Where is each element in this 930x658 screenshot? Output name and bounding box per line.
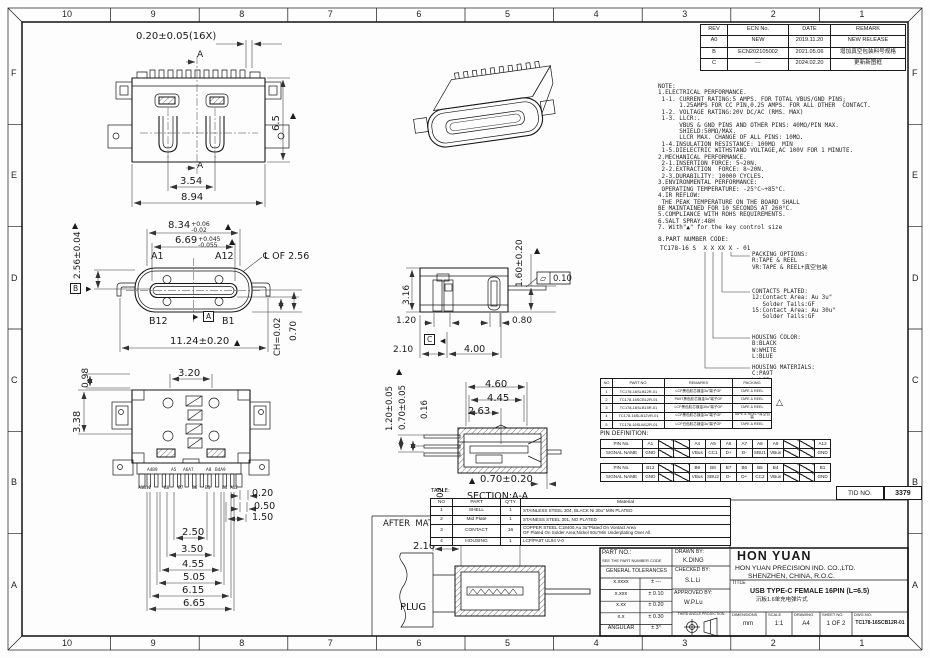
footer-value: 1:1 [766, 621, 792, 628]
dim-label: 0.20 [252, 489, 273, 499]
dim-label: ▱ [540, 275, 546, 283]
dim-label: B1 [222, 317, 235, 327]
cell: REMARKS [665, 379, 733, 388]
part-number-code: TC178-16 S X X XX X - 01 [660, 246, 750, 252]
cell: 4 [601, 412, 613, 421]
cell: VBus [689, 473, 705, 482]
isometric-view [408, 60, 560, 151]
checked-by: S.L.Li [685, 578, 700, 584]
checked-by-label: CHECKED BY: [675, 568, 710, 573]
cell: NO [601, 379, 613, 388]
dim-label: PLUG [400, 603, 426, 613]
footer-header: DWG.NO. [854, 613, 872, 617]
dim-label: ▲ [396, 368, 402, 376]
zone-number: 4 [594, 639, 599, 648]
cell [674, 464, 690, 473]
cell: SBU2 [705, 473, 721, 482]
dim-label: ▲ [290, 112, 296, 120]
dim-label: A8 [206, 468, 211, 472]
cell: 2 [431, 516, 453, 525]
cell: SIGNAL NAME [601, 449, 643, 458]
zone-letter: D [912, 274, 919, 283]
cell: B4 [768, 464, 784, 473]
cell: D- [736, 449, 752, 458]
cell: TAPE & REEL [733, 421, 772, 429]
cell: 增加真空包装料号规格 [831, 47, 906, 59]
cell: TAPE & REEL [733, 396, 772, 404]
dim-label: A12 [215, 252, 234, 262]
cell: 3 [431, 525, 453, 538]
approved-by: W.P.Lu [684, 600, 703, 606]
zone-letter: F [912, 69, 918, 78]
cell [674, 449, 690, 458]
pn-branch-packing: PACKING OPTIONS: R:TAPE & REEL VR:TAPE &… [752, 252, 828, 271]
company-name: HON YUAN [737, 550, 811, 563]
dim-label: A [197, 51, 203, 60]
footer-value: TC178-16SCB12R-01 [852, 621, 908, 626]
dim-label: 1.60±0.20 [516, 239, 525, 287]
zone-letter: A [912, 581, 918, 590]
dim-label: A5 [171, 468, 176, 472]
tid-value: 3379 [884, 486, 922, 500]
zone-letter: A [11, 581, 17, 590]
zone-number: 7 [328, 639, 333, 648]
cell: STAINLESS STEEL 304, BLACK Ni 30u" MIN P… [521, 507, 731, 516]
cell: SIGNAL NAME [601, 473, 643, 482]
dim-label: A6A7 [183, 468, 194, 472]
cell: LCP黑色胶芯镀金3u"端子GF [665, 412, 733, 421]
dim-label: 3.16 [403, 285, 412, 305]
dim-label: ◀ [440, 338, 445, 345]
dim-label: 2.50 [182, 528, 204, 538]
dim-label: 2.56±0.04 [74, 231, 83, 279]
dim-label: B4A9 [215, 468, 226, 472]
cell [658, 449, 674, 458]
cell: Q'TY [501, 499, 521, 507]
cell: B6 [736, 464, 752, 473]
dim-label: 4.55 [182, 560, 204, 570]
tolerance-header: GENERAL TOLERANCES [601, 569, 672, 574]
cell: B [701, 47, 728, 59]
cell: A5 [705, 440, 721, 449]
tolerance-value: ± 0.20 [642, 603, 670, 609]
dim-label: 3.20 [178, 369, 200, 379]
cell: Mid Plate [453, 516, 501, 525]
cell: TC178-16SLB12VR-01 [613, 412, 665, 421]
frame-lines [730, 498, 908, 548]
cell: 2 [601, 396, 613, 404]
cell [799, 449, 815, 458]
datum-c: C [424, 334, 435, 345]
cell: VBus [768, 473, 784, 482]
engineering-drawing-sheet: .s{fill:none;stroke:#161616;stroke-width… [0, 0, 930, 658]
dim-label: A4B9 [147, 468, 158, 472]
dim-label: 1.50 [252, 513, 273, 523]
drawn-by: K.DING [683, 558, 704, 564]
cell: A0 [701, 36, 728, 48]
zone-number: 2 [771, 10, 776, 19]
cell: 1 [501, 507, 521, 516]
zone-letter: E [11, 171, 17, 180]
footer-header: SHEET NO. [822, 613, 844, 617]
cell: GND [815, 473, 831, 482]
tolerance-label: x.xxxx [605, 580, 637, 586]
cell: SHELL [453, 507, 501, 516]
cell: D+ [721, 449, 737, 458]
dim-label: A1B12 [138, 486, 151, 490]
cell: B9 [689, 464, 705, 473]
cell: B1 [815, 464, 831, 473]
dim-label: △ [776, 399, 783, 408]
zone-number: 3 [682, 10, 687, 19]
revision-table: REVECN No.DATEREMARKA0NEW2019.11.20NEW R… [700, 24, 906, 71]
cell [783, 449, 799, 458]
drawn-by-label: DRAWN BY: [675, 550, 704, 555]
zone-number: 7 [328, 10, 333, 19]
dim-label: 6.15 [182, 586, 204, 596]
cell: 3 [601, 404, 613, 412]
dim-label: ℄ OF 2.56 [263, 252, 309, 262]
zone-number: 1 [859, 10, 864, 19]
cell [799, 464, 815, 473]
dim-label: B12 [149, 317, 168, 327]
cell: LCP白色胶芯镀金3u"端子GF [665, 421, 733, 429]
cell: A7 [736, 440, 752, 449]
dim-label: 6.5 [272, 115, 282, 131]
tolerance-value: ± 3° [642, 626, 670, 632]
cell: ECN No. [728, 25, 789, 36]
cell: LCP黑色胶芯镀金30u"端子GF [665, 404, 733, 412]
cell: LCP/PA9T UL94 V-0 [521, 538, 731, 546]
pn-code-tree-lines [705, 252, 750, 368]
dim-label: A [197, 162, 203, 171]
section-view [398, 382, 561, 489]
dim-label: 0.10 [553, 275, 572, 284]
cell: TC178-16SLW12R-01 [613, 421, 665, 429]
pin-table-b: PIN No.B12B9B8B7B6B5B4B1SIGNAL NAMEGNDVB… [600, 463, 831, 482]
notes-block: NOTE: 1.ELECTRICAL PERFORMANCE. 1-1. CUR… [658, 84, 871, 232]
dim-label: A1 [151, 252, 164, 262]
zone-number: 8 [239, 10, 244, 19]
tid-label: TID NO. [836, 486, 884, 500]
zone-number: 2 [771, 639, 776, 648]
cell: A1 [643, 440, 659, 449]
cell: PACKING [733, 379, 772, 388]
cell: PART [453, 499, 501, 507]
cell: PIN No. [601, 440, 643, 449]
datum-a: A [203, 311, 214, 322]
zone-letter: C [912, 376, 919, 385]
footer-header: SCALE [768, 613, 781, 617]
dim-label: 1.20 [396, 317, 416, 326]
dim-label: 2.63 [468, 407, 490, 417]
company-line1: HON YUAN PRECISION IND. CO.,LTD. [735, 565, 856, 572]
cell: NEW [728, 36, 789, 48]
dim-label: ▲ [469, 477, 475, 485]
dim-label: ▲ [225, 223, 231, 231]
title-label: TITLE [732, 581, 746, 586]
dim-label: 8.34+0.06-0.02 [168, 221, 210, 235]
cell: D- [721, 473, 737, 482]
cell: D+ [736, 473, 752, 482]
dim-label: 3.54 [180, 177, 202, 187]
cell: B8 [705, 464, 721, 473]
company-line2: SHENZHEN, CHINA, R.O.C. [748, 573, 835, 580]
cell: LCP黑色胶芯镀金3u"端子GF [665, 388, 733, 396]
zone-number: 8 [239, 639, 244, 648]
cell: 2021.05.06 [789, 47, 831, 59]
zone-number: 9 [151, 639, 156, 648]
pin-table-a: PIN No.A1A4A5A6A7A8A9A12SIGNAL NAMEGNDVB… [600, 439, 831, 458]
footer-header: DIMENSIONS [732, 613, 757, 617]
zone-number: 3 [682, 639, 687, 648]
cell: COPPER STEEL C18400,Au 3u"Plated On Vont… [521, 525, 731, 538]
footer-value: A4 [792, 621, 820, 628]
footer-value: 1 OF 2 [820, 621, 852, 628]
dim-label: 11.24±0.20 [170, 337, 229, 347]
tid-box: TID NO. 3379 [836, 486, 922, 500]
cell: REV [701, 25, 728, 36]
cell [674, 473, 690, 482]
dim-label: 3.38 [73, 411, 83, 433]
cell [658, 440, 674, 449]
zone-number: 10 [62, 639, 72, 648]
tolerance-value: ± 0.10 [642, 592, 670, 598]
part-no-note: SEE THE PART NUMBER CODE [602, 559, 662, 563]
zone-number: 9 [151, 10, 156, 19]
cell: B7 [721, 464, 737, 473]
dim-label: 0.20±0.05(16X) [136, 32, 216, 42]
part-number-heading: 8.PART NUMBER CODE: [658, 237, 729, 243]
footer-header: DRAWING [794, 613, 813, 617]
cell: A9 [768, 440, 784, 449]
cell: A12 [815, 440, 831, 449]
cell [783, 440, 799, 449]
dim-label: B1 [222, 486, 227, 490]
dim-label: 0.70 [290, 321, 299, 341]
cell: VBus [689, 449, 705, 458]
cell: TC178-16SCB12R-01 [613, 396, 665, 404]
cell: PA9T黑色胶芯镀金3u"端子GF [665, 396, 733, 404]
zone-letter: F [11, 69, 17, 78]
cell: ECN202105002 [728, 47, 789, 59]
dim-label: 0.16 [421, 400, 430, 419]
tolerance-label: x.xx [605, 603, 637, 609]
cell: 16 [501, 525, 521, 538]
dim-label: 4.00 [464, 345, 485, 355]
parts-table: NOPARTQ'TYMaterial1SHELL1STAINLESS STEEL… [430, 498, 731, 546]
datum-b: B [70, 283, 81, 294]
cell: 1 [601, 388, 613, 396]
cell [658, 464, 674, 473]
cell: CC2 [752, 473, 768, 482]
cell: TAPE & REEL [733, 388, 772, 396]
tolerance-label: x.xxx [605, 592, 637, 598]
pn-branch-housing-color: HOUSING COLOR: B:BLACK W:WHITE L:BLUE [752, 335, 801, 360]
cell: TAPE & REEL [733, 404, 772, 412]
cell: GND [815, 449, 831, 458]
zone-number: 6 [416, 10, 421, 19]
cell [783, 473, 799, 482]
tolerance-label: ANGULAR [605, 626, 637, 632]
cell: 2024.02.20 [789, 59, 831, 71]
cell: B5 [752, 464, 768, 473]
dim-label: 8.94 [181, 193, 203, 203]
approved-by-label: APPROVED BY: [674, 591, 712, 596]
dim-label: 2.10 [393, 346, 413, 355]
zone-number: 5 [505, 10, 510, 19]
dim-label: 0.98 [82, 368, 91, 388]
zone-number: 6 [416, 639, 421, 648]
zone-letter: D [11, 274, 18, 283]
cell: TAPE & REEL+真空包装 [733, 412, 772, 421]
cell: A4 [689, 440, 705, 449]
zone-letter: C [11, 376, 18, 385]
cell: DATE [789, 25, 831, 36]
tolerance-label: x.x [605, 615, 637, 621]
tolerance-value: ± --- [642, 580, 670, 586]
cell: CONTACT [453, 525, 501, 538]
dim-label: ▲ [72, 222, 78, 230]
cell [674, 440, 690, 449]
cell [783, 464, 799, 473]
dim-label: 1.20±0.05 [386, 386, 395, 431]
cell: HOUSING [453, 538, 501, 546]
cell: PART NO. [613, 379, 665, 388]
parts-table-title: TABLE: [431, 489, 450, 495]
dim-label: CH=0.02 [274, 318, 283, 356]
cell: VBus [768, 449, 784, 458]
dim-label: 0.50 [254, 502, 275, 512]
dim-label: 6.65 [183, 599, 205, 609]
part-no-label: PART NO.: [602, 550, 631, 556]
dim-label: 3.50 [181, 545, 203, 555]
dim-label: B5 [205, 486, 210, 490]
cell: TC178-16SLB12R-01 [613, 388, 665, 396]
dim-label: 5.05 [183, 573, 205, 583]
drawing-subtitle: 沉板1.6单充电弹片式 [756, 598, 808, 604]
drawing-title: USB TYPE-C FEMALE 16PIN (L=6.5) [750, 588, 869, 595]
zone-number: 4 [594, 10, 599, 19]
cell [799, 473, 815, 482]
zone-number: 5 [505, 639, 510, 648]
variant-table: NOPART NO.REMARKSPACKING1TC178-16SLB12R-… [600, 378, 772, 429]
zone-letter: B [11, 478, 17, 487]
cell: C [701, 59, 728, 71]
pn-branch-contacts: CONTACTS PLATED: 12:Contact Area: Au 3u"… [752, 289, 836, 320]
projection-label: THIRD ANGLE PROJECTION [672, 613, 730, 617]
cell: TC178-16SLB15R-01 [613, 404, 665, 412]
dim-label: ▶ [86, 286, 91, 293]
dim-label: 4.60 [485, 380, 507, 390]
dim-label: ▶ [193, 314, 198, 321]
cell: GND [643, 449, 659, 458]
cell: 1 [431, 507, 453, 516]
tolerance-value: ± 0.30 [642, 615, 670, 621]
cell: CC1 [705, 449, 721, 458]
zone-letter: E [912, 171, 918, 180]
dim-label: 0.80 [512, 317, 532, 326]
dim-label: B7 [178, 486, 183, 490]
zone-number: 1 [859, 639, 864, 648]
cell: 1 [501, 516, 521, 525]
footer-value: mm [730, 621, 766, 628]
cell: NEW RELEASE [831, 36, 906, 48]
dim-label: 0.70±0.20 [480, 475, 533, 485]
cell [799, 440, 815, 449]
cell: PIN No. [601, 464, 643, 473]
dim-label: 6.69+0.045-0.055 [175, 236, 220, 250]
cell: 1 [501, 538, 521, 546]
cell: GND [643, 473, 659, 482]
cell: REMARK [831, 25, 906, 36]
cell: 5 [601, 421, 613, 429]
pin-definition-title: PIN DEFINITION: [600, 431, 648, 437]
cell: --- [728, 59, 789, 71]
cell: 2019.11.20 [789, 36, 831, 48]
dim-label: ▲ [534, 247, 540, 255]
cell: A8 [752, 440, 768, 449]
dim-label: B6 [192, 486, 197, 490]
cell: A6 [721, 440, 737, 449]
cell: B12 [643, 464, 659, 473]
cell: 更新新图框 [831, 59, 906, 71]
dim-label: A12 [230, 486, 238, 490]
dim-label: B8 [164, 486, 169, 490]
cell: NO [431, 499, 453, 507]
bottom-footprint-view [78, 374, 270, 611]
cell: Material [521, 499, 731, 507]
dim-label: ▲ [234, 339, 240, 347]
dim-label: 0.70±0.05 [399, 385, 408, 430]
cell: SBU1 [752, 449, 768, 458]
dim-label: 4.45 [487, 394, 509, 404]
cell: STAINESS STEEL 301, NO PLATED [521, 516, 731, 525]
zone-number: 10 [62, 10, 72, 19]
cell: 4 [431, 538, 453, 546]
dim-label: ▲ [229, 238, 235, 246]
cell [658, 473, 674, 482]
